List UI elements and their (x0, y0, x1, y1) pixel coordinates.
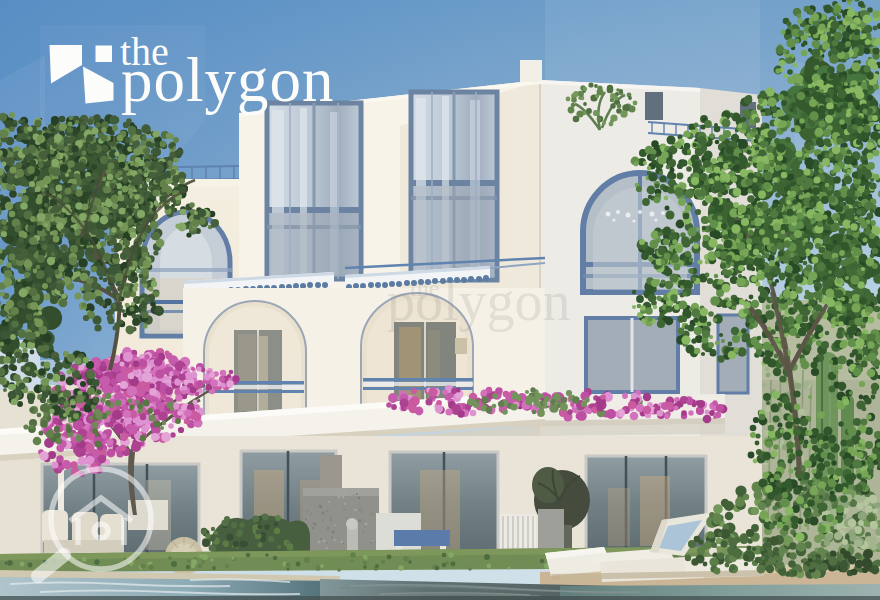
svg-text:polygon: polygon (121, 45, 335, 115)
